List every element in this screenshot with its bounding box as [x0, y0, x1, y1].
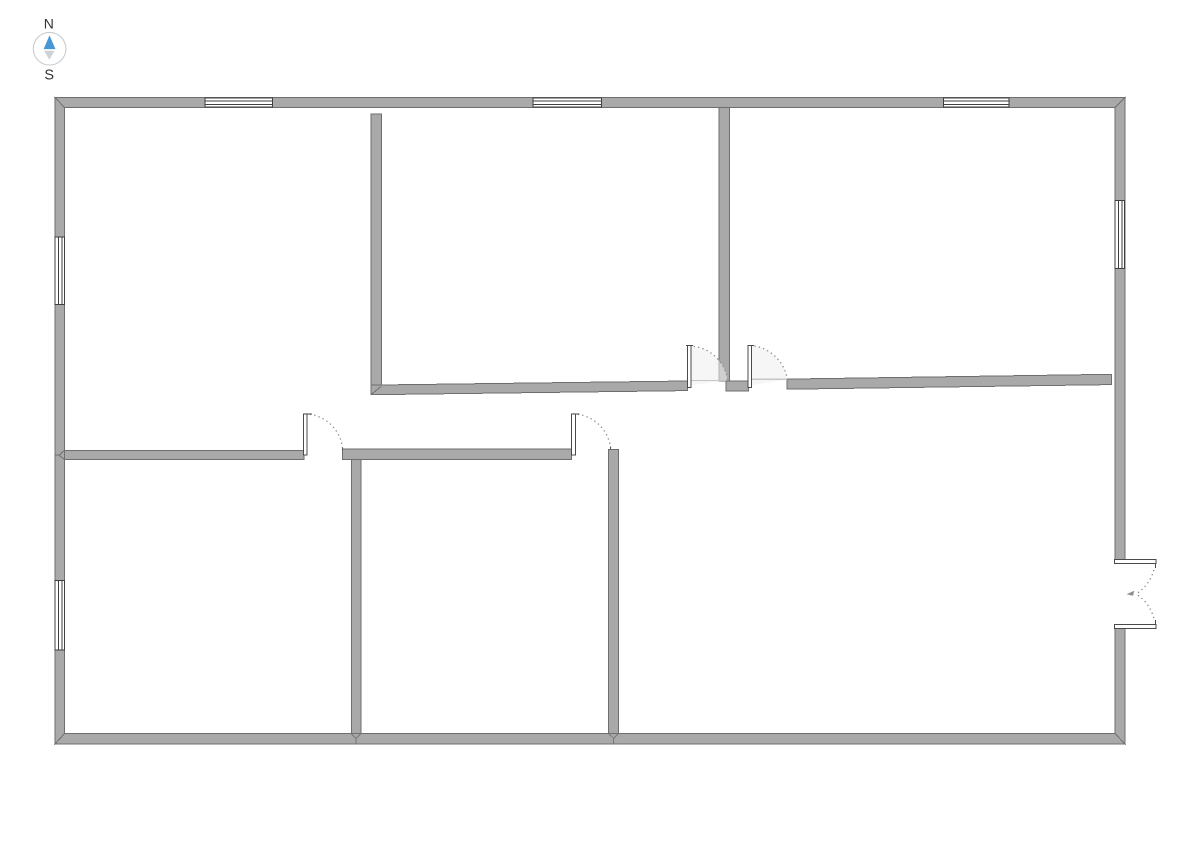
svg-text:S: S — [44, 67, 54, 83]
svg-text:N: N — [44, 16, 54, 32]
